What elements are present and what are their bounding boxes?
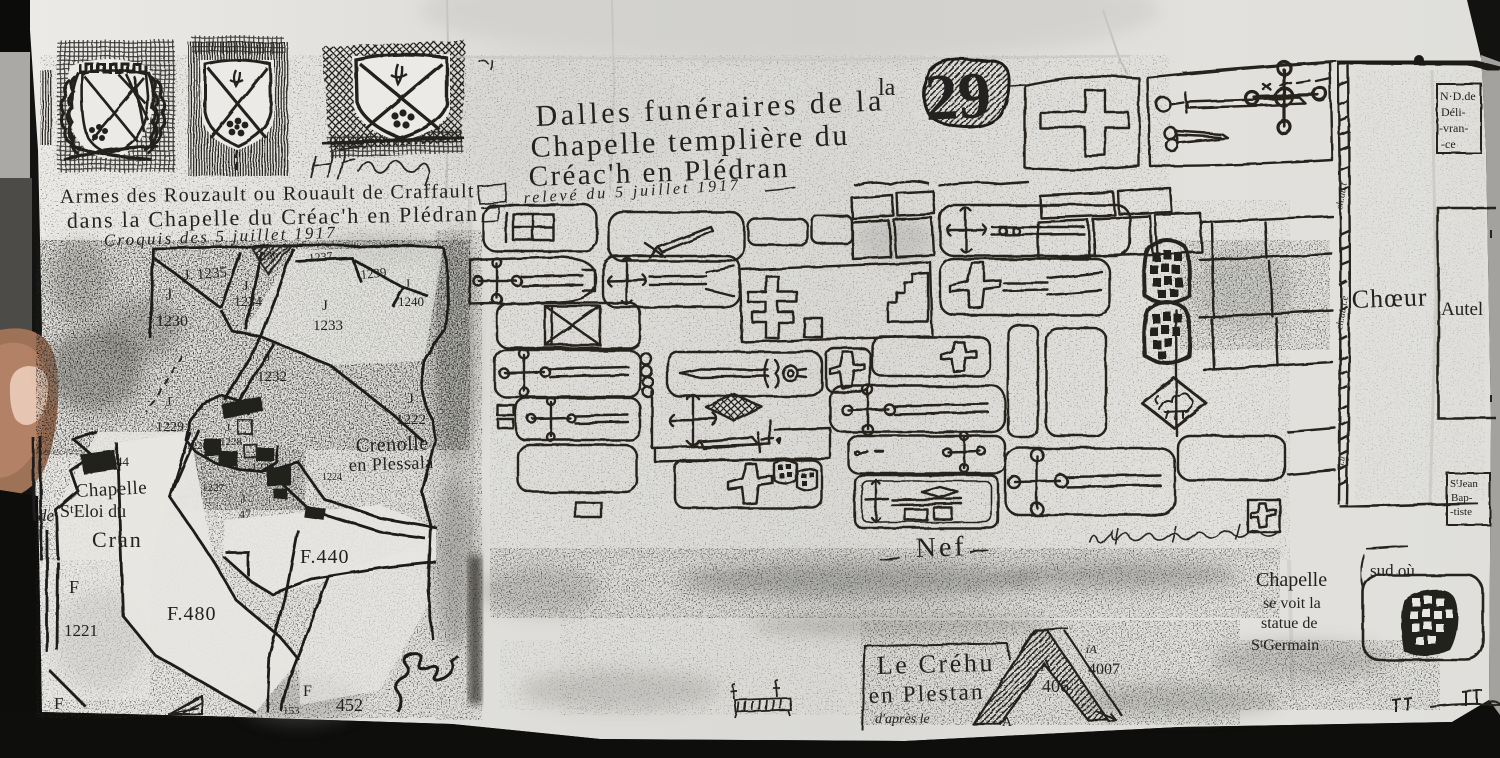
svg-text:d'après le: d'après le bbox=[875, 712, 930, 727]
svg-text:1228: 1228 bbox=[186, 440, 209, 452]
svg-text:F.480: F.480 bbox=[167, 603, 217, 625]
svg-text:J: J bbox=[166, 287, 172, 304]
svg-text:de: de bbox=[38, 506, 55, 525]
svg-text:StEloi du: StEloi du bbox=[60, 501, 126, 521]
svg-text:íA: íA bbox=[1086, 642, 1097, 656]
svg-text:1232: 1232 bbox=[257, 369, 287, 385]
svg-text:J: J bbox=[405, 276, 410, 291]
svg-text:44: 44 bbox=[116, 454, 130, 469]
svg-text:en Plestan: en Plestan bbox=[868, 679, 985, 708]
svg-text:1221: 1221 bbox=[64, 621, 98, 640]
svg-text:1231: 1231 bbox=[221, 400, 236, 408]
svg-text:406: 406 bbox=[1042, 676, 1069, 696]
svg-text:452: 452 bbox=[336, 695, 363, 715]
svg-text:1224: 1224 bbox=[322, 472, 342, 483]
svg-text:1233: 1233 bbox=[313, 318, 343, 334]
svg-text:1230: 1230 bbox=[156, 313, 188, 330]
svg-text:a.u: a.u bbox=[1335, 455, 1347, 468]
svg-text:Autel: Autel bbox=[1441, 299, 1483, 320]
svg-text:1240: 1240 bbox=[398, 294, 424, 309]
svg-text:153: 153 bbox=[283, 705, 300, 717]
svg-text:statue de: statue de bbox=[1261, 615, 1317, 632]
svg-text:Chapelle: Chapelle bbox=[75, 477, 148, 502]
svg-text:1237: 1237 bbox=[308, 249, 333, 265]
svg-text:47: 47 bbox=[239, 507, 251, 521]
svg-text:F: F bbox=[69, 577, 79, 597]
svg-text:1225: 1225 bbox=[251, 460, 275, 474]
svg-text:N·D.de: N·D.de bbox=[1440, 89, 1476, 103]
svg-text:-tiste: -tiste bbox=[1450, 506, 1472, 518]
svg-text:StJean: StJean bbox=[1450, 477, 1478, 490]
svg-text:Bap-: Bap- bbox=[1451, 492, 1473, 504]
svg-text:en Plessala: en Plessala bbox=[348, 452, 434, 475]
svg-text:-vran-: -vran- bbox=[1439, 121, 1468, 135]
svg-text:Chapelle: Chapelle bbox=[1256, 569, 1327, 591]
svg-text:1229: 1229 bbox=[156, 420, 184, 435]
svg-text:1222: 1222 bbox=[396, 412, 426, 428]
svg-text:Cran: Cran bbox=[92, 527, 143, 552]
svg-text:J: J bbox=[243, 279, 249, 294]
svg-text:29: 29 bbox=[923, 59, 993, 135]
svg-text:F: F bbox=[303, 683, 312, 700]
svg-text:J: J bbox=[259, 444, 264, 458]
svg-text:J: J bbox=[322, 298, 328, 314]
svg-text:sud où: sud où bbox=[1370, 561, 1415, 580]
svg-text:la: la bbox=[878, 75, 896, 101]
svg-text:se voit la: se voit la bbox=[1263, 595, 1321, 612]
svg-text:1227: 1227 bbox=[202, 482, 225, 494]
svg-text:Nef: Nef bbox=[915, 531, 967, 564]
svg-text:A: A bbox=[1040, 656, 1053, 675]
svg-text:4007: 4007 bbox=[1088, 661, 1120, 678]
svg-text:F: F bbox=[54, 694, 63, 713]
svg-text:1239: 1239 bbox=[360, 264, 387, 282]
svg-text:-ce: -ce bbox=[1441, 137, 1456, 151]
svg-text:1234: 1234 bbox=[234, 295, 262, 310]
svg-text:J: J bbox=[408, 391, 414, 407]
svg-text:Chœur: Chœur bbox=[1351, 282, 1428, 314]
svg-text:F.440: F.440 bbox=[300, 546, 350, 568]
svg-text:J: J bbox=[166, 395, 172, 410]
svg-text:1228: 1228 bbox=[220, 436, 243, 448]
svg-text:J. 1235: J. 1235 bbox=[183, 265, 227, 284]
svg-text:A: A bbox=[1002, 715, 1013, 730]
svg-text:Le Créhu: Le Créhu bbox=[876, 648, 995, 680]
svg-text:Déli-: Déli- bbox=[1441, 105, 1466, 119]
svg-text:J: J bbox=[265, 349, 271, 365]
svg-text:J: J bbox=[226, 422, 231, 434]
svg-text:J: J bbox=[241, 492, 246, 506]
